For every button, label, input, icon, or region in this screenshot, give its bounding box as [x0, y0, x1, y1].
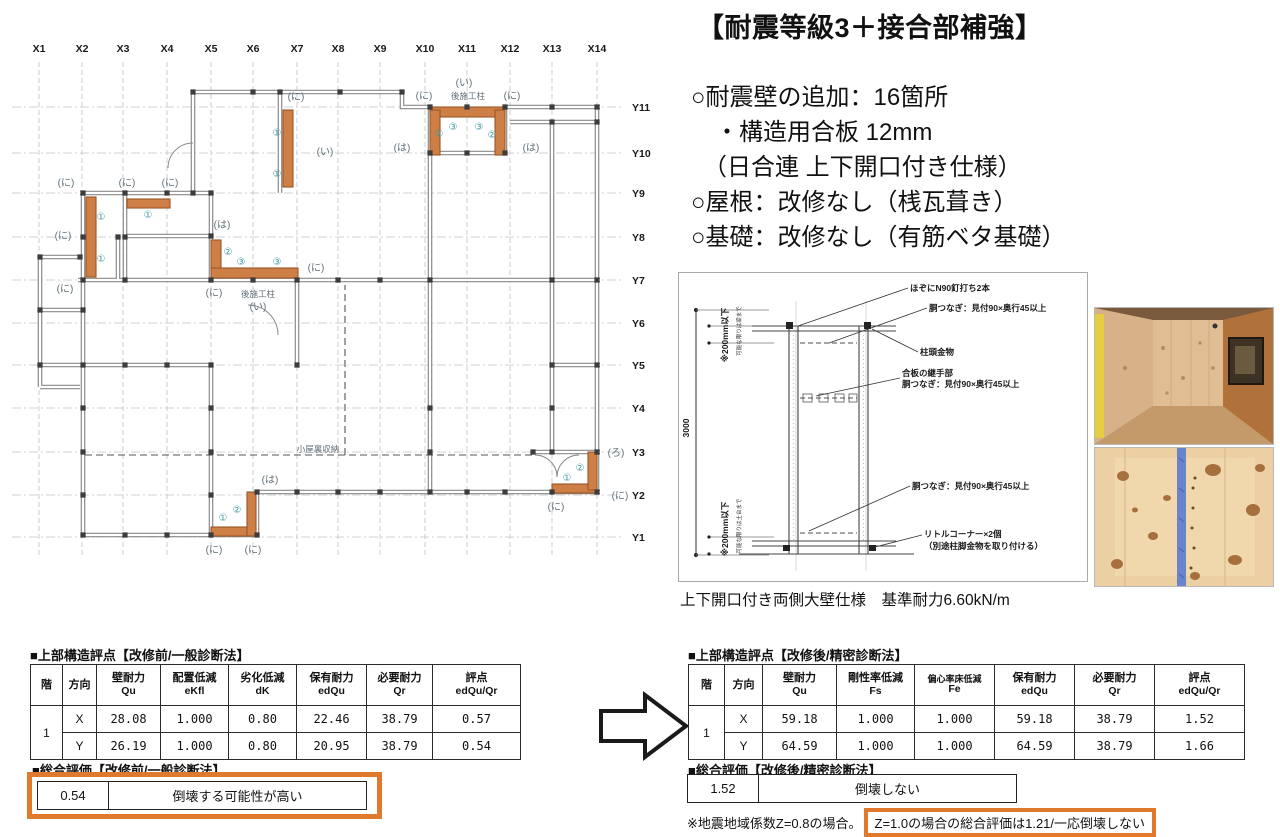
dim-3000: 3000 [681, 418, 691, 437]
col-header: 方向 [63, 665, 97, 706]
table-cell: 59.18 [763, 706, 837, 733]
table-cell: Y [63, 733, 97, 760]
circled-number: ① [144, 210, 153, 221]
x-axis-label: X13 [543, 43, 562, 55]
x-axis-label: X10 [416, 43, 435, 55]
y-axis-label: Y6 [632, 318, 645, 330]
table-cell: 64.59 [995, 733, 1075, 760]
circled-number: ② [488, 130, 497, 141]
before-table: 階方向壁耐力Qu配置低減eKfl劣化低減dK保有耐力edQu必要耐力Qr評点ed… [30, 664, 521, 760]
post-bottom-hardware [783, 545, 790, 551]
circled-number: ② [233, 505, 242, 516]
annotation-gouhan-joint: 合板の継手部 [901, 368, 954, 378]
plan-wall-labels: (に)(に)(に)(に)(い)(は)(に)(に)(に)(に)後施工柱(い)(い)… [55, 78, 629, 556]
annotation-hozo: ほぞにN90釘打ち2本 [910, 283, 990, 293]
y-axis-label: Y9 [632, 188, 645, 200]
dim-note-top: 可能な限りは梁まで [735, 306, 743, 356]
circled-number: ③ [475, 122, 484, 133]
col-header: 評点edQu/Qr [433, 665, 521, 706]
annotation-dotsunagi-low: 胴つなぎ：見付90×奥行45以上 [911, 481, 1030, 491]
x-axis-label: X11 [458, 43, 476, 55]
table-cell: 64.59 [763, 733, 837, 760]
after-summary-box: 1.52 倒壊しない [687, 774, 1017, 803]
x-axis-label: X7 [291, 43, 304, 55]
table-cell: 0.57 [433, 706, 521, 733]
wall-type-label: (は) [394, 142, 411, 154]
detail-caption: 上下開口付き両側大壁仕様 基準耐力6.60kN/m [680, 588, 1010, 610]
wall-type-label: (に) [416, 90, 433, 102]
y-axis-label: Y3 [632, 447, 645, 459]
wall-type-label: (い) [317, 147, 334, 158]
col-header: 壁耐力Qu [97, 665, 161, 706]
table-cell: 20.95 [297, 733, 367, 760]
photo-yellow-strip [1095, 314, 1104, 438]
wall-type-label: (に) [57, 283, 74, 295]
circled-number: ① [563, 473, 572, 484]
table-row: Y64.591.0001.00064.5938.791.66 [689, 733, 1245, 760]
wall-type-label: 小屋裏収納 [297, 444, 340, 454]
annotation-little-corner: リトルコーナー×2個 [924, 529, 1002, 539]
wall-type-label: (に) [245, 544, 262, 556]
x-axis-label: X6 [247, 43, 260, 55]
col-header: 必要耐力Qr [367, 665, 433, 706]
before-summary-value: 0.54 [38, 782, 109, 810]
circled-number: ① [273, 169, 282, 180]
table-cell: 38.79 [367, 706, 433, 733]
table-cell: X [725, 706, 763, 733]
wall-type-label: (に) [612, 490, 629, 502]
wall-detail-svg: 3000 ※200mm以下 可能な限りは梁まで ※200mm以下 可能な限りは土… [679, 273, 1087, 581]
col-header: 偏心率床低減Fe [915, 665, 995, 706]
wall-type-label: (に) [206, 544, 223, 556]
col-header: 劣化低減dK [229, 665, 297, 706]
blue-tape-seam [1177, 448, 1186, 586]
wall-type-label: (に) [58, 177, 75, 189]
y-axis-label: Y2 [632, 490, 645, 502]
wall-type-label: (に) [504, 90, 521, 102]
table-cell: 0.80 [229, 733, 297, 760]
wall-type-label: (に) [288, 91, 305, 103]
bullet-line: （日合連 上下開口付き仕様） [691, 150, 1066, 185]
circled-number: ③ [237, 257, 246, 268]
x-axis-label: X8 [332, 43, 345, 55]
y-axis-label: Y4 [632, 403, 645, 415]
table-cell: 0.80 [229, 706, 297, 733]
wall-type-label: (い) [250, 302, 267, 313]
y-axis-label: Y5 [632, 360, 645, 372]
wall-type-label: (に) [55, 230, 72, 242]
table-cell: 1.000 [161, 733, 229, 760]
circled-number: ① [97, 254, 106, 265]
table-cell: 38.79 [367, 733, 433, 760]
annotation-dotsunagi-top: 胴つなぎ：見付90×奥行45以上 [928, 303, 1047, 313]
note-highlight-box: Z=1.0の場合の総合評価は1.21/一応倒壊しない [864, 808, 1157, 837]
after-summary-value: 1.52 [688, 775, 759, 803]
col-header: 方向 [725, 665, 763, 706]
table-cell: 1.000 [837, 733, 915, 760]
seismic-zone-note: ※地震地域係数Z=0.8の場合。Z=1.0の場合の総合評価は1.21/一応倒壊し… [687, 808, 1156, 837]
table-row: Y26.191.0000.8020.9538.790.54 [31, 733, 521, 760]
before-table-section: ■上部構造評点【改修前/一般診断法】 階方向壁耐力Qu配置低減eKfl劣化低減d… [30, 645, 521, 760]
before-summary-highlight-box: 0.54 倒壊する可能性が高い [27, 772, 382, 819]
annotation-gouhan-dotsunagi: 胴つなぎ：見付90×奥行45以上 [901, 379, 1020, 389]
plan-walls [40, 92, 600, 535]
page-title: 【耐震等級3＋接合部補強】 [697, 6, 1043, 45]
table-cell: 22.46 [297, 706, 367, 733]
x-axis-label: X9 [374, 43, 387, 55]
after-table-title: ■上部構造評点【改修後/精密診断法】 [688, 645, 1245, 664]
circled-number: ② [224, 247, 233, 258]
y-axis-label: Y11 [632, 102, 650, 114]
circled-number: ③ [449, 122, 458, 133]
col-header: 階 [31, 665, 63, 706]
bullet-line: ○基礎：改修なし（有筋ベタ基礎） [691, 220, 1066, 255]
col-header: 評点edQu/Qr [1155, 665, 1245, 706]
y-axis-label: Y1 [632, 532, 645, 544]
bullet-line: ・構造用合板 12mm [691, 115, 1066, 150]
col-header: 保有耐力edQu [995, 665, 1075, 706]
post-top-hardware [786, 322, 793, 329]
bullet-line: ○耐震壁の追加：16箇所 [691, 80, 1066, 115]
table-row: 1X59.181.0001.00059.1838.791.52 [689, 706, 1245, 733]
table-cell: 1.000 [915, 733, 995, 760]
dim-200-top: ※200mm以下 [720, 307, 730, 362]
table-cell: X [63, 706, 97, 733]
y-axis-label: Y7 [632, 275, 645, 287]
col-header: 必要耐力Qr [1075, 665, 1155, 706]
table-row: 1X28.081.0000.8022.4638.790.57 [31, 706, 521, 733]
wall-type-label: (に) [548, 501, 565, 513]
dim-200-bottom: ※200mm以下 [720, 501, 730, 556]
y-axis-label: Y8 [632, 232, 645, 244]
circled-number: ① [97, 212, 106, 223]
circled-number: ② [576, 463, 585, 474]
y-axis-label: Y10 [632, 148, 651, 160]
x-axis-label: X4 [161, 43, 174, 55]
note-prefix: ※地震地域係数Z=0.8の場合。 [687, 816, 862, 831]
circled-number: ① [273, 128, 282, 139]
table-cell: 1 [689, 706, 725, 760]
circled-number: ③ [273, 257, 282, 268]
wall-detail-diagram: 3000 ※200mm以下 可能な限りは梁まで ※200mm以下 可能な限りは土… [678, 272, 1088, 582]
table-cell: 26.19 [97, 733, 161, 760]
column-markers [40, 92, 597, 535]
wall-type-label: (は) [262, 474, 279, 486]
x-axis-label: X12 [501, 43, 520, 55]
wall-type-label: (ろ) [608, 448, 625, 459]
table-cell: 28.08 [97, 706, 161, 733]
table-cell: 59.18 [995, 706, 1075, 733]
wall-type-label: (は) [214, 219, 231, 231]
after-table: 階方向壁耐力Qu剛性率低減Fs偏心率床低減Fe保有耐力edQu必要耐力Qr評点e… [688, 664, 1245, 760]
annotation-little-corner-note: （別途柱脚金物を取り付ける） [924, 541, 1043, 551]
wall-type-label: (い) [456, 78, 473, 89]
attic-dashed-boundary [85, 285, 533, 455]
bullet-line: ○屋根：改修なし（桟瓦葺き） [691, 185, 1066, 220]
table-cell: 38.79 [1075, 706, 1155, 733]
col-header: 保有耐力edQu [297, 665, 367, 706]
table-cell: 1.52 [1155, 706, 1245, 733]
annotation-chutou-kanamono: 柱頭金物 [920, 347, 955, 357]
wall-type-label: (に) [119, 177, 136, 189]
floor-plan: X1X2X3X4X5X6X7X8X9X10X11X12X13X14Y11Y10Y… [0, 0, 660, 600]
table-cell: 1 [31, 706, 63, 760]
after-table-section: ■上部構造評点【改修後/精密診断法】 階方向壁耐力Qu剛性率低減Fs偏心率床低減… [688, 645, 1245, 760]
table-cell: 1.000 [915, 706, 995, 733]
wall-type-label: 後施工柱 [451, 91, 486, 101]
x-axis-label: X1 [33, 43, 46, 55]
table-cell: Y [725, 733, 763, 760]
x-axis-label: X14 [588, 43, 607, 55]
circled-number: ② [435, 129, 444, 140]
before-summary-text: 倒壊する可能性が高い [109, 782, 367, 810]
x-axis-label: X5 [205, 43, 218, 55]
wall-type-label: (に) [162, 177, 179, 189]
table-cell: 0.54 [433, 733, 521, 760]
table-cell: 1.66 [1155, 733, 1245, 760]
wall-type-label: (に) [308, 262, 325, 274]
x-axis-label: X3 [117, 43, 130, 55]
table-cell: 38.79 [1075, 733, 1155, 760]
table-cell: 1.000 [837, 706, 915, 733]
wall-type-label: (は) [523, 142, 540, 154]
photo-plywood-closeup [1094, 447, 1274, 587]
wall-type-label: (に) [206, 287, 223, 299]
circled-number: ① [219, 513, 228, 524]
bullet-list: ○耐震壁の追加：16箇所 ・構造用合板 12mm （日合連 上下開口付き仕様） … [691, 80, 1066, 255]
col-header: 配置低減eKfl [161, 665, 229, 706]
dim-note-bottom: 可能な限りは土台まで [735, 498, 743, 554]
col-header: 壁耐力Qu [763, 665, 837, 706]
photo-interior-plywood-room [1094, 307, 1274, 445]
col-header: 剛性率低減Fs [837, 665, 915, 706]
wall-type-label: 後施工柱 [241, 289, 276, 299]
after-summary-text: 倒壊しない [759, 775, 1017, 803]
x-axis-label: X2 [76, 43, 89, 55]
before-table-title: ■上部構造評点【改修前/一般診断法】 [30, 645, 521, 664]
transition-arrow-icon [598, 690, 690, 762]
table-cell: 1.000 [161, 706, 229, 733]
reinforced-walls [86, 107, 597, 536]
plan-grid [12, 62, 622, 556]
col-header: 階 [689, 665, 725, 706]
